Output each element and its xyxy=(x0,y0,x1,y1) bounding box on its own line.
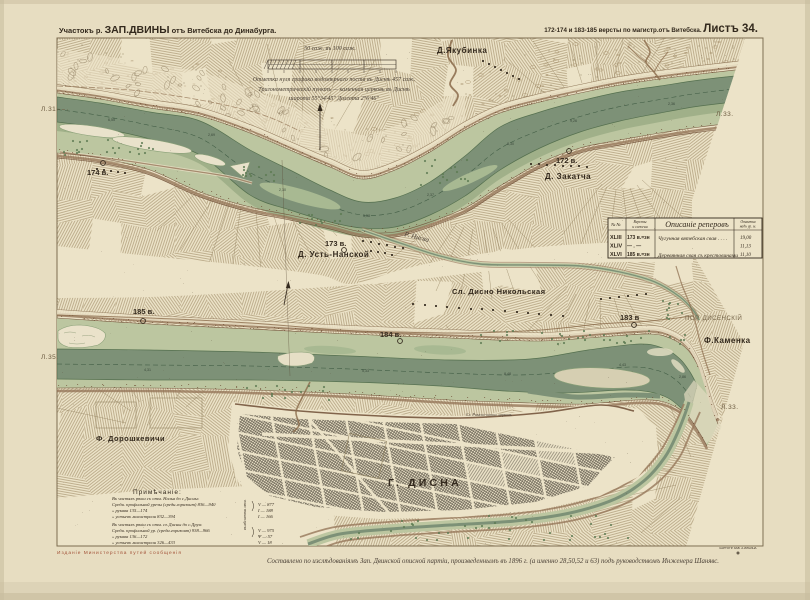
svg-text:XLVI: XLVI xyxy=(610,252,622,258)
svg-text:надъ ур. м.: надъ ур. м. xyxy=(740,225,757,229)
svg-text:Отметка нуля графика водомѣрна: Отметка нуля графика водомѣрнаго поста в… xyxy=(253,76,415,83)
svg-text:11,10: 11,10 xyxy=(740,253,751,258)
svg-text:Версты: Версты xyxy=(634,220,647,224)
svg-text:широта 55°34′45″ Долгота 2°6′4: широта 55°34′45″ Долгота 2°6′46″ xyxy=(289,95,379,102)
svg-text:172 в.: 172 в. xyxy=(556,156,577,165)
svg-text:I — 166: I — 166 xyxy=(257,514,274,519)
svg-text:Тригонометрическій пунктъ — ка: Тригонометрическій пунктъ — каменная цер… xyxy=(258,86,409,93)
svg-text:— . —: — . — xyxy=(627,244,641,250)
svg-text:11,13: 11,13 xyxy=(740,245,751,250)
svg-text:2,36: 2,36 xyxy=(668,102,675,106)
svg-text:№ №: № № xyxy=(610,222,621,227)
svg-text:2,30: 2,30 xyxy=(279,188,286,192)
svg-text:4,43: 4,43 xyxy=(619,363,626,367)
svg-text:2,86: 2,86 xyxy=(679,375,686,379)
svg-text:Сл. Дисно Никольская: Сл. Дисно Никольская xyxy=(452,287,546,296)
svg-text:19,00: 19,00 xyxy=(740,236,752,241)
svg-text:Средн. профильной урезы (средн: Средн. профильной урезы (средн.горизонт)… xyxy=(112,502,216,507)
svg-text:Ψ — 57: Ψ — 57 xyxy=(258,534,273,539)
svg-text:Составлено по изслѣдованіямъ З: Составлено по изслѣдованіямъ Зап. Двинск… xyxy=(267,558,719,565)
svg-text:I — 188: I — 188 xyxy=(257,508,274,513)
svg-text:5,58: 5,58 xyxy=(363,214,370,218)
svg-text:XLIV: XLIV xyxy=(610,244,623,250)
svg-text:Примѣчаніе:: Примѣчаніе: xyxy=(133,488,182,496)
svg-text:Д. Закатча: Д. Закатча xyxy=(545,172,591,181)
svg-text:ПОР. ДИСЕНСКІЙ: ПОР. ДИСЕНСКІЙ xyxy=(685,314,742,322)
svg-text:» устьевъ магистрали: » устьевъ магистрали 326—433 xyxy=(112,540,176,545)
svg-text:V — 975: V — 975 xyxy=(258,528,275,533)
svg-text:9,26: 9,26 xyxy=(570,119,577,123)
svg-text:Л.31.: Л.31. xyxy=(41,106,59,113)
svg-text:5,33: 5,33 xyxy=(362,369,369,373)
svg-text:Ф.Каменка: Ф.Каменка xyxy=(704,336,751,345)
svg-text:2,37: 2,37 xyxy=(427,193,434,197)
svg-text:въ абсолютн. отм.: въ абсолютн. отм. xyxy=(243,499,247,530)
svg-text:Въ частяхъ рѣки съ отм. Налья: Въ частяхъ рѣки съ отм. Налья до с.Дисны… xyxy=(112,496,200,501)
svg-text:50 саж. въ 100 саж.: 50 саж. въ 100 саж. xyxy=(304,46,356,52)
svg-text:Л.35.: Л.35. xyxy=(41,354,59,361)
svg-text:173 в.=зн: 173 в.=зн xyxy=(627,235,650,241)
svg-text:Д.Якубинка: Д.Якубинка xyxy=(437,46,487,55)
svg-text:2,69: 2,69 xyxy=(208,133,215,137)
svg-text:6,55: 6,55 xyxy=(108,118,115,122)
svg-text:184 в.: 184 в. xyxy=(380,330,401,339)
svg-text:КАРТОГР. ЗАВ. А.ИЛЬИНА: КАРТОГР. ЗАВ. А.ИЛЬИНА xyxy=(719,546,756,550)
svg-text:и сажени: и сажени xyxy=(632,225,647,229)
svg-text:Ф. Дорошкевичи: Ф. Дорошкевичи xyxy=(96,434,165,443)
svg-text:173 в.: 173 в. xyxy=(325,239,346,248)
svg-text:Отметка: Отметка xyxy=(740,220,755,224)
svg-text:Л.33.: Л.33. xyxy=(721,404,739,411)
svg-text:V — 877: V — 877 xyxy=(258,502,275,507)
svg-text:8,48: 8,48 xyxy=(504,372,511,376)
svg-text:V — 18: V — 18 xyxy=(258,540,272,545)
svg-text:XLIII: XLIII xyxy=(610,235,622,241)
svg-text:Изданіе Министерства путей: Изданіе Министерства путей сообщенія xyxy=(57,549,182,556)
svg-text:4,31: 4,31 xyxy=(144,368,151,372)
svg-text:Д. Усть-Нанской: Д. Усть-Нанской xyxy=(298,250,369,259)
svg-text:Г. ДИСНА: Г. ДИСНА xyxy=(388,477,462,489)
svg-text:8,30: 8,30 xyxy=(507,142,514,146)
svg-text:Сл. Римско-катол. церковь: Сл. Римско-катол. церковь xyxy=(466,412,512,417)
svg-text:» устьевъ магистрали: » устьевъ магистрали 832—394 xyxy=(112,514,176,519)
svg-text:183 в: 183 в xyxy=(620,313,640,322)
svg-text:» рукава: » рукава 136—172 xyxy=(112,534,148,539)
svg-text:» рукава: » рукава 135—174 xyxy=(112,508,148,513)
svg-text:Л.33.: Л.33. xyxy=(716,111,734,118)
svg-text:185 в.=зн: 185 в.=зн xyxy=(627,252,650,258)
svg-text:Участокъ р. ЗАП.ДВИНЫ отъ Вите: Участокъ р. ЗАП.ДВИНЫ отъ Витебска до Ди… xyxy=(59,24,276,36)
svg-text:185 в.: 185 в. xyxy=(133,307,154,316)
svg-text:Описаніе реперовъ: Описаніе реперовъ xyxy=(665,220,728,229)
svg-text:Чугунная вятебская свая . . .: Чугунная вятебская свая . . . . xyxy=(658,235,728,242)
svg-text:Средн. профильной ур. (средн.г: Средн. профильной ур. (средн.горизонт) 9… xyxy=(112,528,210,533)
svg-text:Въ частяхъ рѣки съ отм. съ Дис: Въ частяхъ рѣки съ отм. съ Дисны до с.Др… xyxy=(112,522,203,527)
